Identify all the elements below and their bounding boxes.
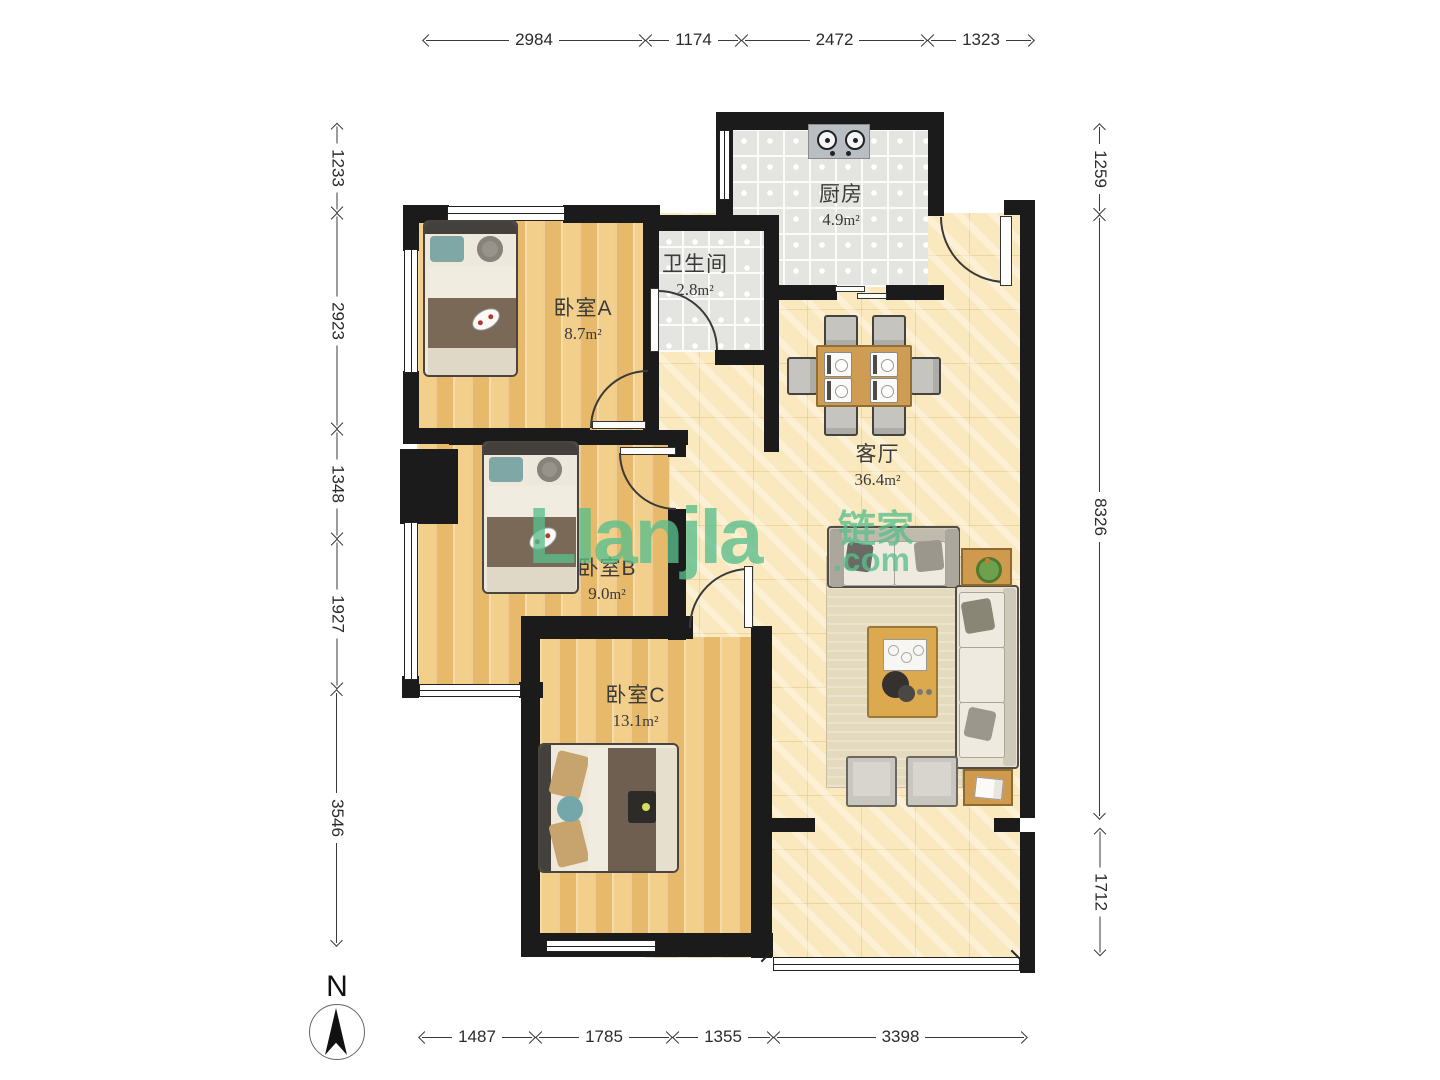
door-leaf: [744, 566, 753, 628]
ottoman: [846, 756, 897, 807]
dining-chair: [824, 403, 858, 436]
pillow: [489, 457, 523, 482]
place-setting: [870, 378, 898, 403]
room-label-bedroom-c: 卧室C 13.1m²: [578, 679, 693, 731]
dimension-right-1: 1259: [1090, 125, 1110, 213]
wall: [400, 449, 458, 524]
dimension-value: 1348: [328, 459, 348, 509]
dimension-value: 8326: [1090, 492, 1110, 542]
sheet: [428, 266, 517, 298]
side-table: [963, 769, 1013, 806]
wall: [403, 205, 419, 251]
place-setting: [824, 378, 852, 403]
sheet: [588, 748, 608, 872]
stove-icon: [808, 124, 870, 159]
burner-icon: [845, 130, 865, 150]
dimension-value: 1487: [452, 1027, 502, 1047]
sheet: [487, 486, 576, 517]
throw-pillow: [960, 598, 995, 635]
dimension-value: 1355: [698, 1027, 748, 1047]
headboard: [484, 443, 577, 455]
wall: [994, 818, 1020, 832]
dining-chair: [910, 357, 941, 395]
headboard: [425, 222, 516, 234]
pillow: [430, 236, 464, 262]
north-label: N: [322, 970, 352, 1004]
room-area: 36.4: [855, 470, 885, 489]
dining-chair: [824, 315, 858, 348]
pillow: [548, 818, 590, 868]
sofa-icon: [955, 585, 1019, 769]
dimension-value: 1712: [1091, 867, 1111, 917]
window: [447, 206, 565, 221]
area-unit: m²: [610, 587, 626, 603]
window: [546, 940, 656, 952]
dining-table-icon: [816, 345, 912, 407]
dimension-left-4: 1927: [328, 541, 348, 688]
headboard: [540, 745, 551, 871]
round-pillow: [557, 796, 583, 822]
room-area: 9.0: [588, 584, 609, 603]
dimension-value: 3546: [327, 793, 347, 843]
window: [719, 130, 730, 200]
dimension-value: 1174: [669, 30, 718, 50]
dimension-left-3: 1348: [328, 431, 348, 538]
book-icon: [974, 777, 1004, 801]
bed-foot: [656, 748, 678, 872]
dimension-value: 1785: [579, 1027, 629, 1047]
throw-pillow: [844, 541, 874, 572]
bedroom-b-floor-lobe: [417, 616, 523, 686]
dimension-right-3: 1712: [1091, 830, 1111, 955]
teapot-icon: [898, 685, 915, 702]
armrest: [945, 529, 959, 587]
room-label-bedroom-b: 卧室B 9.0m²: [552, 552, 662, 604]
sofa-back: [842, 529, 945, 541]
wall: [751, 626, 772, 958]
plant-icon: [976, 557, 1002, 583]
dimension-value: 1323: [956, 30, 1006, 50]
round-cushion: [537, 457, 562, 482]
room-label-living: 客厅 36.4m²: [820, 438, 935, 490]
room-area: 8.7: [564, 324, 585, 343]
floor-plan-canvas: 厨房 4.9m² 卫生间 2.8m² 卧室A 8.7m² 客厅 36.4m² 卧…: [0, 0, 1440, 1080]
sliding-door: [835, 286, 865, 292]
dimension-top-4: 1323: [929, 30, 1033, 50]
dining-chair: [872, 403, 906, 436]
bed-foot: [428, 348, 517, 376]
room-name: 客厅: [820, 438, 935, 468]
side-table: [961, 548, 1012, 586]
sliding-door: [857, 293, 887, 299]
area-unit: m²: [884, 473, 900, 489]
wall: [764, 285, 837, 300]
area-unit: m²: [698, 283, 714, 299]
wall: [530, 616, 693, 639]
dimension-bottom-1: 1487: [420, 1027, 534, 1047]
entry-door-leaf: [1000, 216, 1012, 286]
room-area: 2.8: [676, 280, 697, 299]
wall: [928, 200, 944, 215]
stove-knob: [846, 151, 851, 156]
bed-icon: [538, 743, 679, 873]
dimension-top-2: 1174: [647, 30, 740, 50]
wall: [764, 215, 779, 452]
dining-chair: [872, 315, 906, 348]
coffee-table-icon: [867, 626, 938, 718]
dimension-left-1: 1233: [328, 125, 348, 212]
dimension-value: 1259: [1090, 144, 1110, 194]
area-unit: m²: [586, 327, 602, 343]
wall: [1020, 213, 1035, 818]
dimension-bottom-2: 1785: [537, 1027, 671, 1047]
wall: [1020, 832, 1035, 973]
ottoman: [906, 756, 958, 807]
dimension-top-3: 2472: [743, 30, 926, 50]
door-leaf: [620, 447, 676, 455]
compass-icon: [309, 1004, 365, 1060]
area-unit: m²: [844, 213, 860, 229]
compass-needle-icon: [325, 1008, 347, 1055]
throw-pillow: [914, 540, 945, 573]
wall: [770, 818, 815, 832]
dimension-top-1: 2984: [424, 30, 644, 50]
dimension-bottom-3: 1355: [674, 1027, 772, 1047]
sofa-icon: [827, 526, 960, 588]
dining-chair: [787, 357, 818, 395]
dimension-value: 3398: [876, 1027, 926, 1047]
door-leaf: [592, 421, 646, 429]
window: [419, 684, 521, 697]
area-unit: m²: [642, 714, 658, 730]
dimension-value: 2472: [810, 30, 860, 50]
wall: [886, 285, 944, 300]
window: [404, 249, 418, 373]
room-label-bedroom-a: 卧室A 8.7m²: [528, 292, 638, 344]
bed-tray: [628, 791, 656, 823]
dimension-left-5: 3546: [327, 691, 347, 945]
dimension-left-2: 2923: [328, 215, 348, 428]
room-name: 卧室A: [528, 292, 638, 322]
room-name: 卫生间: [640, 248, 750, 278]
dimension-right-2: 8326: [1090, 216, 1110, 818]
wall: [643, 215, 779, 231]
stove-knob: [830, 151, 835, 156]
tray: [883, 639, 927, 671]
room-label-bathroom: 卫生间 2.8m²: [640, 248, 750, 300]
place-setting: [870, 352, 898, 377]
round-cushion: [477, 236, 503, 262]
dimension-value: 1233: [328, 143, 348, 193]
dimension-value: 1927: [328, 589, 348, 639]
room-label-kitchen: 厨房 4.9m²: [786, 178, 896, 230]
dimension-value: 2984: [509, 30, 559, 50]
room-name: 卧室B: [552, 552, 662, 582]
window: [404, 522, 418, 680]
bed-icon: [423, 220, 518, 377]
room-name: 卧室C: [578, 679, 693, 709]
dimension-value: 2923: [328, 296, 348, 346]
window: [773, 957, 1020, 971]
room-area: 4.9: [822, 210, 843, 229]
sofa-cushion: [959, 647, 1005, 703]
place-setting: [824, 352, 852, 377]
room-area: 13.1: [613, 711, 643, 730]
burner-icon: [817, 130, 837, 150]
room-name: 厨房: [786, 178, 896, 208]
pillow: [548, 750, 590, 800]
dimension-bottom-4: 3398: [775, 1027, 1026, 1047]
